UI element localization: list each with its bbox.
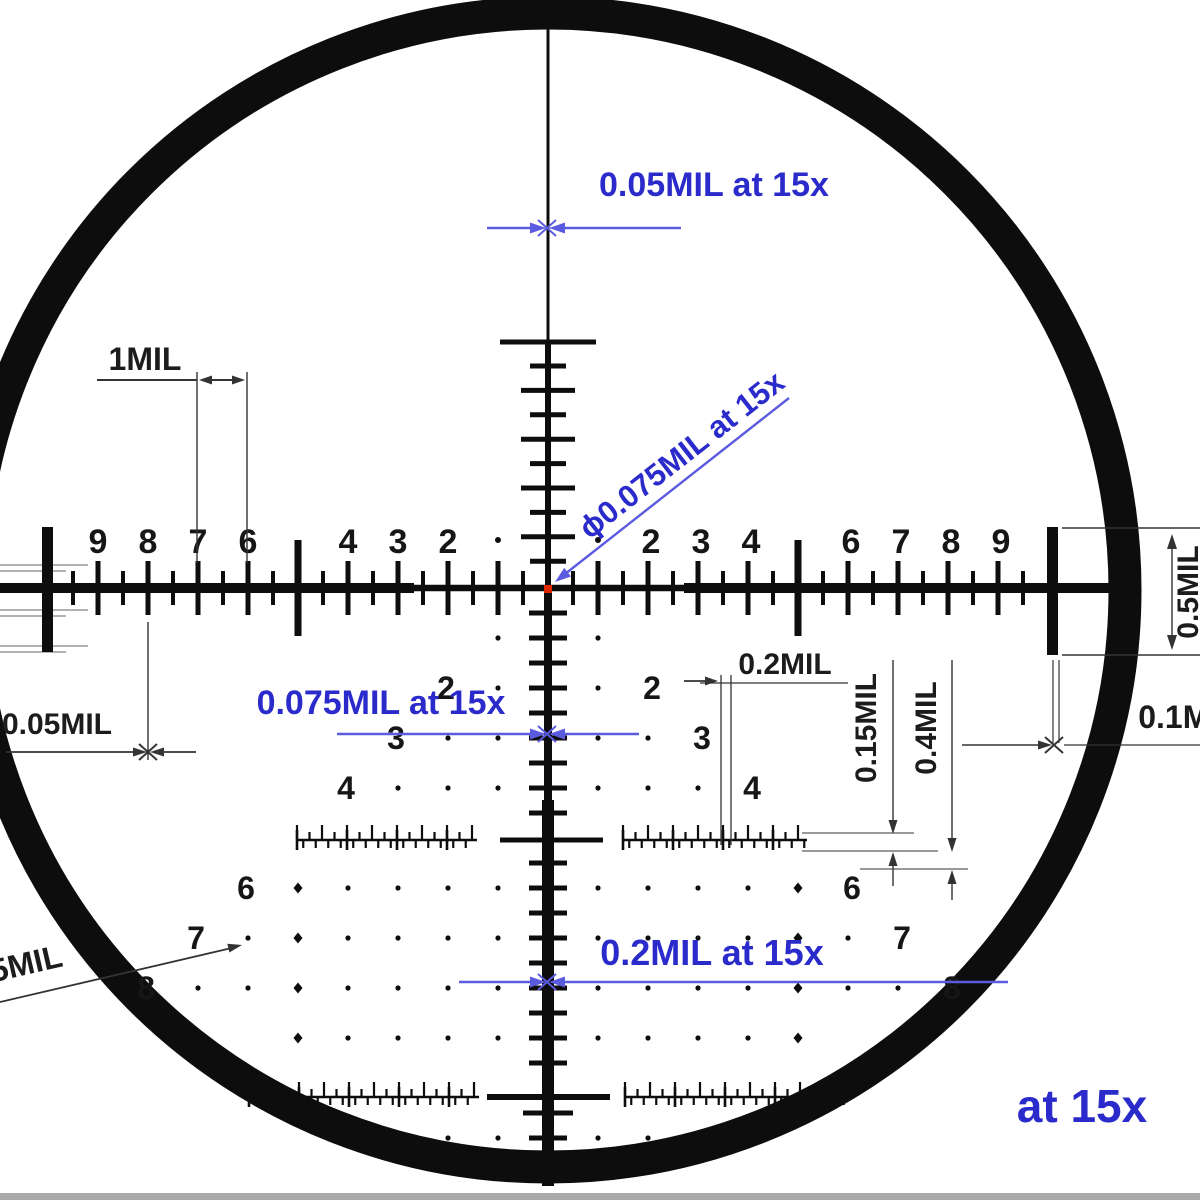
arrowhead [227,944,242,953]
mil-number-right: 6 [842,523,861,561]
hold-dot [495,985,500,990]
reticle-svg: 98764322346789223344667788 1MIL0.05MIL0.… [0,0,1200,1200]
diag-dim-label: ϕ0.075MIL at 15x [572,363,791,545]
mil-number-right: 3 [692,523,711,561]
arrowhead [948,838,957,852]
arrowhead [199,376,212,385]
bottom-gray-bar [0,1193,1200,1200]
hold-dot [395,1035,400,1040]
arrowhead [232,376,245,385]
ruler-height-dim-label: 0.15MIL [850,673,883,783]
hold-dot [595,1135,600,1140]
arrowhead [889,852,898,866]
hold-dot [645,885,650,890]
mil-number-right: 2 [642,523,661,561]
hold-dot [495,935,500,940]
hold-dot [345,885,350,890]
hold-dot [445,785,450,790]
hold-dot [445,935,450,940]
tree-number-left: 6 [237,870,255,906]
right-bar-dim-label: 0.5MIL [1172,545,1200,638]
hold-dot [645,985,650,990]
hold-dot [495,635,500,640]
hold-diamond [794,883,803,894]
hold-dot [895,985,900,990]
center-red-dot [544,585,552,593]
arrowhead [948,870,957,884]
hold-dot [395,785,400,790]
mil-number-left: 3 [389,523,408,561]
bottom-gray-bar [0,1193,1200,1200]
mil-number-left: 7 [189,523,208,561]
hold-dot [445,885,450,890]
hold-dot [395,935,400,940]
hold-dot [845,985,850,990]
hold-dot [245,935,250,940]
hold-diamond [294,983,303,994]
hold-dot [495,885,500,890]
ten-mil-bar-right [1047,527,1058,655]
hold-diamond [294,883,303,894]
arrowhead [705,677,718,686]
one-mil-dot [495,537,501,543]
magnification-label: at 15x [1017,1080,1148,1132]
hold-diamond [794,1033,803,1044]
reticle-diagram: 98764322346789223344667788 1MIL0.05MIL0.… [0,0,1200,1200]
tree-number-left: 7 [187,920,205,956]
hold-dot [745,1035,750,1040]
hold-dot [645,1135,650,1140]
hold-dot [695,1035,700,1040]
hold-dot [645,735,650,740]
mil-number-left: 6 [239,523,258,561]
mil-number-left: 9 [89,523,108,561]
dot-size-dim-label: 0.25MIL [0,938,66,999]
ruler-height-dim2-label: 0.4MIL [910,681,943,774]
hold-dot [745,985,750,990]
hold-diamond [794,983,803,994]
tree-number-right: 8 [943,970,961,1006]
hold-dot [595,735,600,740]
hold-dot [745,885,750,890]
hold-dot [595,885,600,890]
mil-number-right: 8 [942,523,961,561]
hold-dot [445,1035,450,1040]
hold-dot [845,935,850,940]
hold-dot [445,1135,450,1140]
right-gap-dim-label: 0.1MIL [1138,699,1200,735]
hold-diamond [294,1033,303,1044]
left-small-dim-label: 0.05MIL [2,708,112,741]
tree-number-left: 3 [387,720,405,756]
hold-dot [695,785,700,790]
hold-dot [695,985,700,990]
hold-dot [595,635,600,640]
hold-dot [445,985,450,990]
hold-dot [645,785,650,790]
bottom-dim-label: 0.2MIL at 15x [600,932,823,973]
hold-dot [345,935,350,940]
mil-number-left: 4 [339,523,358,561]
tree-number-right: 2 [643,670,661,706]
center-dot [544,585,552,593]
mil-number-left: 2 [439,523,458,561]
mil-number-right: 4 [742,523,761,561]
hold-dot [595,985,600,990]
mil-number-left: 8 [139,523,158,561]
hold-dot [495,1035,500,1040]
tree-number-right: 7 [893,920,911,956]
hold-dot [395,985,400,990]
hold-dot [695,885,700,890]
hold-dot [495,785,500,790]
hold-dot [595,1035,600,1040]
hold-dot [495,1135,500,1140]
hold-dot [645,1035,650,1040]
tree-number-right: 6 [843,870,861,906]
mil-number-right: 9 [992,523,1011,561]
one-mil-label: 1MIL [109,341,182,377]
hold-dot [495,735,500,740]
hold-diamond [294,933,303,944]
tree-number-left: 4 [337,770,355,806]
gap-dim-label: 0.2MIL [738,648,831,681]
blue-dimensions: 0.05MIL at 15xϕ0.075MIL at 15x0.075MIL a… [257,166,1148,1132]
tree-number-right: 4 [743,770,761,806]
mid-dim-label: 0.075MIL at 15x [257,684,506,722]
hold-dot [195,985,200,990]
top-dim-label: 0.05MIL at 15x [599,166,829,204]
hold-dot [345,985,350,990]
hold-dot [595,685,600,690]
hold-dot [445,735,450,740]
tree-number-right: 3 [693,720,711,756]
arrowhead [889,820,898,834]
hold-dot [245,985,250,990]
hold-dot [345,1035,350,1040]
hold-dot [595,785,600,790]
ten-mil-bar-left [42,527,53,652]
mil-number-right: 7 [892,523,911,561]
hold-dot [395,885,400,890]
tree-number-left: 8 [137,970,155,1006]
